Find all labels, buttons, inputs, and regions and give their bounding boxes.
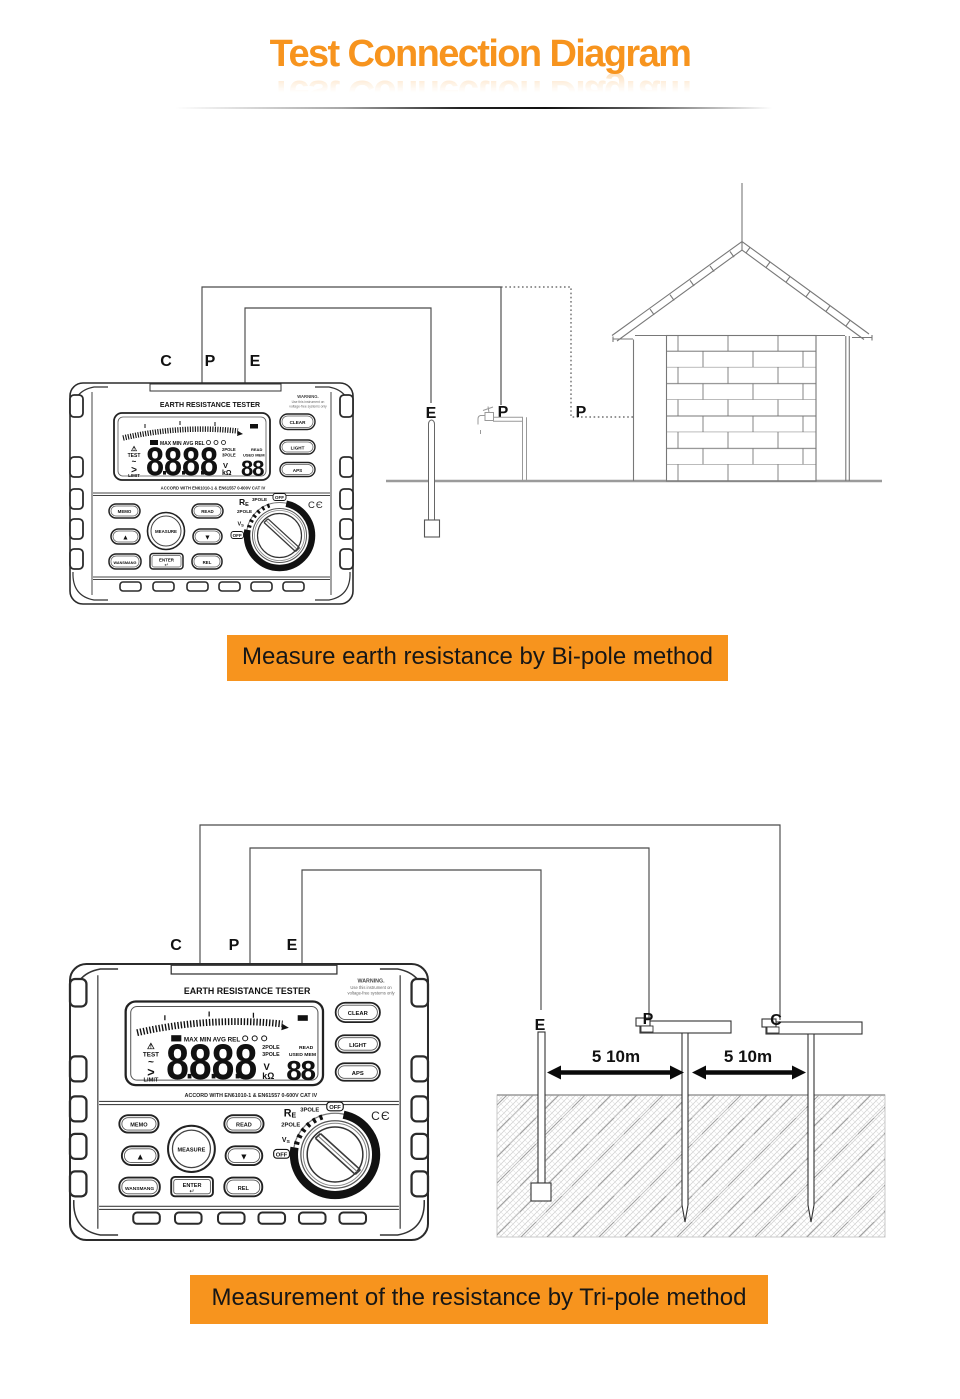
svg-text:C: C <box>770 1012 782 1029</box>
svg-text:P: P <box>576 404 587 421</box>
svg-text:P: P <box>498 404 509 421</box>
svg-text:P: P <box>643 1011 654 1028</box>
svg-text:P: P <box>205 353 216 370</box>
svg-text:5 10m: 5 10m <box>724 1047 772 1066</box>
svg-text:C: C <box>160 353 172 370</box>
svg-text:C: C <box>170 937 182 954</box>
svg-text:E: E <box>287 937 298 954</box>
svg-text:E: E <box>535 1017 546 1034</box>
svg-text:E: E <box>426 405 437 422</box>
svg-text:E: E <box>250 353 261 370</box>
svg-text:P: P <box>229 937 240 954</box>
svg-text:5 10m: 5 10m <box>592 1047 640 1066</box>
